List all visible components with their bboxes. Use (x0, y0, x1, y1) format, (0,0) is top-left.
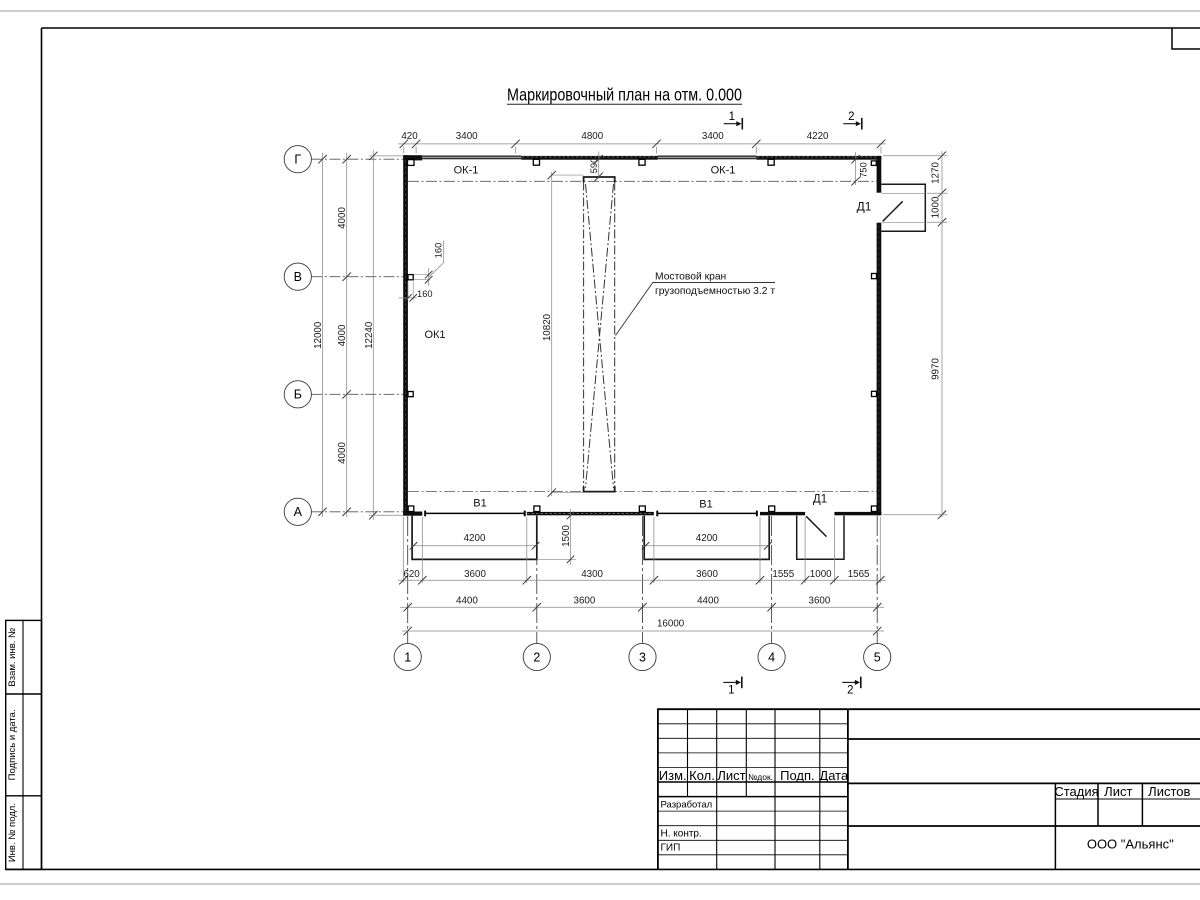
svg-text:Мостовой кран: Мостовой кран (655, 272, 726, 283)
svg-text:3400: 3400 (702, 131, 724, 142)
svg-text:12240: 12240 (364, 321, 375, 349)
svg-text:9970: 9970 (931, 358, 942, 380)
svg-text:5: 5 (874, 650, 881, 664)
svg-text:ГИП: ГИП (661, 843, 681, 854)
svg-text:12000: 12000 (313, 321, 324, 349)
svg-text:3400: 3400 (456, 131, 478, 142)
svg-text:Изм.: Изм. (659, 768, 687, 783)
svg-text:16000: 16000 (657, 619, 685, 630)
svg-text:ОК-1: ОК-1 (454, 165, 479, 177)
svg-text:ОК-1: ОК-1 (711, 165, 736, 177)
svg-text:3600: 3600 (574, 596, 596, 607)
svg-text:Листов: Листов (1148, 784, 1190, 799)
svg-text:Маркировочный план на отм. 0.0: Маркировочный план на отм. 0.000 (507, 85, 742, 105)
svg-text:ООО "Альянс": ООО "Альянс" (1087, 837, 1174, 852)
svg-text:4200: 4200 (696, 533, 718, 544)
svg-text:Лист: Лист (1104, 784, 1132, 799)
svg-text:4000: 4000 (337, 207, 348, 229)
svg-text:3600: 3600 (464, 569, 486, 580)
svg-text:грузоподъемностью 3.2 т: грузоподъемностью 3.2 т (655, 286, 775, 297)
svg-text:2: 2 (848, 111, 854, 123)
svg-text:Взам. инв. №: Взам. инв. № (7, 628, 18, 687)
svg-text:4000: 4000 (337, 442, 348, 464)
svg-text:Стадия: Стадия (1054, 784, 1098, 799)
svg-text:750: 750 (859, 162, 869, 178)
svg-text:3600: 3600 (696, 569, 718, 580)
svg-text:4: 4 (768, 650, 775, 664)
svg-text:590: 590 (589, 158, 599, 174)
svg-text:Б: Б (294, 388, 302, 402)
svg-text:Дата: Дата (819, 768, 849, 783)
svg-text:Г: Г (294, 153, 301, 167)
svg-text:А: А (294, 505, 303, 519)
svg-text:160: 160 (417, 289, 433, 299)
svg-text:В1: В1 (473, 497, 486, 509)
svg-text:1000: 1000 (810, 569, 832, 580)
svg-text:1: 1 (729, 111, 735, 123)
svg-text:Д1: Д1 (813, 494, 827, 506)
svg-text:4400: 4400 (697, 596, 719, 607)
svg-text:4400: 4400 (456, 596, 478, 607)
svg-text:№док.: №док. (748, 772, 773, 782)
svg-text:Разработал: Разработал (661, 800, 713, 811)
svg-text:Лист: Лист (717, 768, 745, 783)
svg-text:4800: 4800 (581, 131, 603, 142)
svg-text:Подпись и дата.: Подпись и дата. (7, 709, 18, 780)
svg-text:Кол.: Кол. (689, 768, 715, 783)
svg-text:1270: 1270 (931, 162, 942, 184)
svg-text:3600: 3600 (809, 596, 831, 607)
svg-text:1555: 1555 (772, 569, 794, 580)
svg-text:ОК1: ОК1 (424, 329, 445, 341)
svg-text:10820: 10820 (542, 313, 553, 341)
svg-text:Д1: Д1 (857, 200, 872, 214)
svg-text:Подп.: Подп. (780, 768, 815, 783)
svg-text:1: 1 (728, 684, 734, 696)
svg-text:1500: 1500 (561, 525, 572, 547)
svg-text:4000: 4000 (337, 324, 348, 346)
svg-text:4200: 4200 (464, 533, 486, 544)
svg-text:1565: 1565 (848, 569, 870, 580)
svg-text:Н. контр.: Н. контр. (661, 829, 702, 840)
svg-text:1: 1 (404, 650, 411, 664)
svg-text:2: 2 (847, 684, 853, 696)
svg-text:160: 160 (434, 243, 444, 259)
svg-text:4300: 4300 (581, 569, 603, 580)
svg-text:Инв. № подл.: Инв. № подл. (7, 803, 18, 862)
svg-text:1000: 1000 (931, 196, 942, 218)
svg-text:В: В (294, 270, 302, 284)
svg-text:4220: 4220 (807, 131, 829, 142)
svg-text:3: 3 (639, 650, 646, 664)
svg-text:620: 620 (403, 569, 420, 580)
svg-text:В1: В1 (699, 499, 712, 511)
svg-text:2: 2 (533, 650, 540, 664)
svg-text:420: 420 (401, 131, 418, 142)
